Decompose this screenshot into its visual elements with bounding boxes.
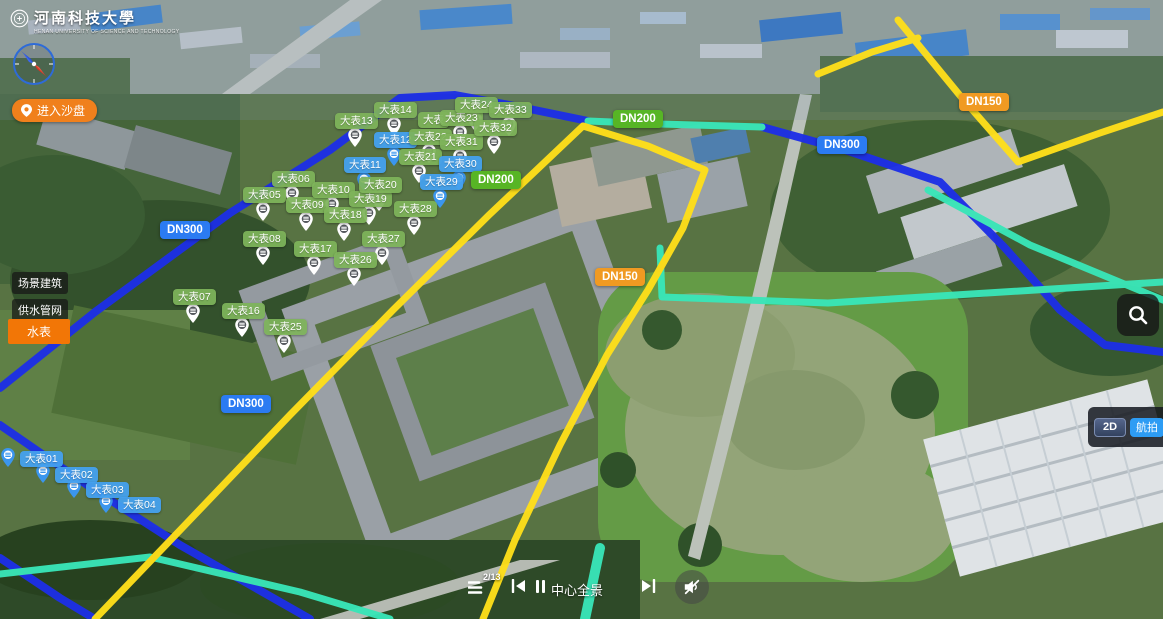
water-meter-pin[interactable] — [348, 128, 362, 147]
location-pin-icon — [21, 104, 32, 117]
water-meter-pin[interactable] — [307, 256, 321, 275]
university-seal-icon — [10, 9, 29, 28]
water-meter-marker[interactable]: 大表14 — [374, 102, 417, 118]
water-meter-pin-icon — [487, 135, 501, 154]
university-name-en: HENAN UNIVERSITY OF SCIENCE AND TECHNOLO… — [34, 29, 180, 35]
water-meter-pin[interactable] — [299, 212, 313, 231]
water-meter-marker[interactable]: 大表04 — [118, 497, 161, 513]
search-icon — [1127, 304, 1149, 326]
search-button[interactable] — [1117, 294, 1159, 336]
water-meter-marker[interactable]: 大表07 — [173, 289, 216, 305]
layer-toggle-water-meters[interactable]: 水表 — [8, 319, 70, 344]
water-meter-pin[interactable] — [235, 318, 249, 337]
panorama-title: 中心全景 — [551, 580, 603, 599]
water-meter-marker[interactable]: 大表13 — [335, 113, 378, 129]
previous-button[interactable] — [511, 579, 526, 593]
water-meter-pin-icon — [348, 128, 362, 147]
water-meter-pin-icon — [299, 212, 313, 231]
speaker-muted-icon — [683, 578, 701, 596]
pause-button[interactable] — [536, 580, 545, 593]
water-meter-pin[interactable] — [256, 202, 270, 221]
water-meter-marker[interactable]: 大表30 — [439, 156, 482, 172]
water-meter-marker[interactable]: 大表09 — [286, 197, 329, 213]
water-meter-pin[interactable] — [256, 246, 270, 265]
water-meter-marker[interactable]: 大表33 — [489, 102, 532, 118]
map-3d-view[interactable]: 大表01大表02大表03大表04大表05大表06大表07大表08大表09大表10… — [0, 0, 1163, 619]
pipe-diameter-label[interactable]: DN300 — [221, 395, 271, 413]
pipe-diameter-label[interactable]: DN300 — [817, 136, 867, 154]
water-meter-marker[interactable]: 大表20 — [359, 177, 402, 193]
water-meter-marker[interactable]: 大表06 — [272, 171, 315, 187]
pipe-diameter-label[interactable]: DN150 — [595, 268, 645, 286]
water-meter-pin-icon — [186, 304, 200, 323]
water-meter-pin-icon — [277, 334, 291, 353]
water-meter-pin[interactable] — [407, 216, 421, 235]
water-meter-marker[interactable]: 大表18 — [324, 207, 367, 223]
water-meter-marker[interactable]: 大表11 — [344, 157, 386, 173]
water-meter-pin-icon — [235, 318, 249, 337]
playlist-counter: 2/13 — [483, 572, 501, 582]
water-meter-pin[interactable] — [277, 334, 291, 353]
water-meter-marker[interactable]: 大表25 — [264, 319, 307, 335]
mode-2d-button[interactable]: 2D — [1094, 418, 1126, 437]
next-button[interactable] — [641, 579, 656, 593]
mode-aerial-button[interactable]: 航拍 — [1130, 418, 1163, 437]
water-meter-pin[interactable] — [347, 267, 361, 286]
water-meter-pin-icon — [307, 256, 321, 275]
water-meter-pin-icon — [375, 246, 389, 265]
water-meter-pin[interactable] — [1, 448, 15, 467]
water-meter-marker[interactable]: 大表05 — [243, 187, 286, 203]
water-meter-pin-icon — [337, 222, 351, 241]
enter-sandbox-label: 进入沙盘 — [37, 102, 85, 119]
water-meter-marker[interactable]: 大表31 — [440, 134, 483, 150]
water-meter-marker[interactable]: 大表32 — [474, 120, 517, 136]
enter-sandbox-button[interactable]: 进入沙盘 — [12, 99, 97, 122]
water-meter-marker[interactable]: 大表29 — [420, 174, 463, 190]
view-mode-panel: 2D 航拍 — [1088, 407, 1163, 447]
water-meter-marker[interactable]: 大表27 — [362, 231, 405, 247]
water-meter-pin-icon — [256, 246, 270, 265]
water-meter-marker[interactable]: 大表16 — [222, 303, 265, 319]
water-meter-pin-icon — [256, 202, 270, 221]
university-logo: 河南科技大學 HENAN UNIVERSITY OF SCIENCE AND T… — [10, 7, 180, 35]
water-meter-marker[interactable]: 大表08 — [243, 231, 286, 247]
pipe-diameter-label[interactable]: DN200 — [471, 171, 521, 189]
water-meter-marker[interactable]: 大表01 — [20, 451, 63, 467]
pipe-diameter-label[interactable]: DN200 — [613, 110, 663, 128]
water-meter-marker[interactable]: 大表26 — [334, 252, 377, 268]
water-meter-pin[interactable] — [375, 246, 389, 265]
mute-button[interactable] — [675, 570, 709, 604]
university-name: 河南科技大學 — [34, 7, 180, 28]
playlist-icon[interactable] — [468, 580, 486, 596]
water-meter-pin[interactable] — [487, 135, 501, 154]
water-meter-marker[interactable]: 大表28 — [394, 201, 437, 217]
water-meter-pin[interactable] — [337, 222, 351, 241]
water-meter-pin-icon — [347, 267, 361, 286]
water-meter-pin-icon — [407, 216, 421, 235]
pipe-diameter-label[interactable]: DN300 — [160, 221, 210, 239]
compass[interactable] — [12, 42, 56, 86]
water-meter-marker[interactable]: 大表17 — [294, 241, 337, 257]
pipe-diameter-label[interactable]: DN150 — [959, 93, 1009, 111]
layer-toggle-scene-buildings[interactable]: 场景建筑 — [12, 272, 68, 294]
layer-toggle-water-pipes[interactable]: 供水管网 — [12, 299, 68, 321]
water-meter-marker[interactable]: 大表21 — [399, 149, 442, 165]
water-meter-marker[interactable]: 大表19 — [349, 191, 392, 207]
water-meter-marker[interactable]: 大表03 — [86, 482, 129, 498]
water-meter-pin[interactable] — [186, 304, 200, 323]
water-meter-marker[interactable]: 大表02 — [55, 467, 98, 483]
panorama-player-bar: 2/13 中心全景 — [0, 570, 1163, 606]
water-meter-pin-icon — [1, 448, 15, 467]
